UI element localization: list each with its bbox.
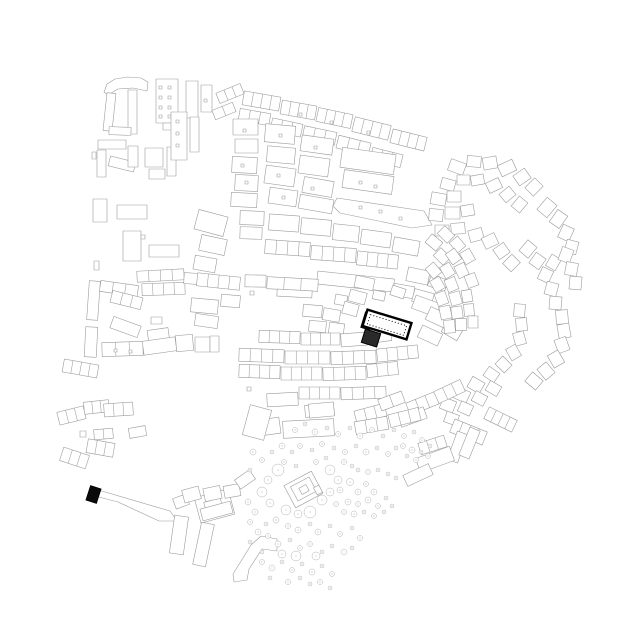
tree-symbol — [248, 468, 252, 472]
building-outline — [221, 294, 241, 308]
building-outline — [471, 391, 488, 407]
tree-symbol — [260, 560, 265, 565]
building-outline — [451, 306, 464, 319]
tree-symbol — [402, 434, 407, 439]
building-outline — [92, 152, 96, 159]
tree-symbol — [330, 544, 334, 548]
tree-symbol — [366, 470, 371, 475]
site-plan-map — [0, 0, 640, 640]
tree-symbol — [294, 464, 298, 468]
tree-symbol — [372, 514, 377, 519]
building-outline — [186, 81, 198, 118]
tree-symbol — [280, 560, 284, 564]
terraced-row — [366, 361, 398, 377]
courtyard-square — [359, 181, 362, 184]
tree-symbol — [308, 582, 312, 586]
tree-symbol — [412, 430, 416, 434]
building-outline — [231, 192, 258, 207]
building-outline — [481, 233, 499, 250]
tree-symbol — [350, 546, 354, 550]
building-outline — [98, 140, 126, 149]
building-outline — [149, 169, 165, 179]
building-outline — [210, 336, 219, 352]
building-outline — [457, 401, 473, 416]
building-outline — [470, 174, 485, 186]
tree-symbol — [325, 426, 329, 430]
tree-symbol — [386, 472, 390, 476]
courtyard-square — [114, 349, 117, 352]
courtyard-square — [279, 134, 282, 137]
building-outline — [233, 536, 277, 582]
building-outline — [95, 489, 177, 521]
tree-symbol — [290, 568, 295, 573]
tree-symbol — [405, 454, 409, 458]
building-outline — [513, 331, 527, 346]
building-outline — [194, 209, 228, 236]
courtyard-square — [141, 235, 145, 239]
courtyard-square — [159, 96, 162, 99]
tree-symbol — [394, 446, 398, 450]
courtyard-square — [314, 146, 317, 149]
tree-symbol — [358, 536, 363, 541]
courtyard-square — [299, 113, 302, 116]
building-outline — [429, 208, 444, 221]
building-outline — [342, 301, 360, 316]
tree-symbol — [355, 489, 361, 495]
tree-symbol — [337, 487, 343, 493]
terraced-row — [104, 402, 134, 417]
building-outline — [308, 402, 334, 418]
tree-symbol — [381, 434, 385, 438]
terraced-row — [352, 117, 392, 141]
tree-symbol — [426, 454, 431, 459]
courtyard-square — [241, 164, 244, 167]
courtyard-square — [159, 106, 162, 109]
building-outline — [194, 313, 218, 328]
building-outline — [451, 222, 466, 234]
terraced-row — [285, 351, 330, 364]
building-outline — [277, 289, 312, 298]
tree-symbol — [293, 428, 298, 433]
tree-symbol — [266, 534, 271, 539]
building-outline — [303, 304, 323, 318]
building-outline — [497, 159, 517, 177]
courtyard-square — [367, 131, 370, 134]
building-outline — [449, 291, 463, 306]
building-outline — [151, 317, 162, 324]
building-outline — [482, 156, 498, 170]
tree-symbol — [317, 495, 327, 505]
tree-symbol — [376, 468, 380, 472]
courtyard-square — [243, 129, 246, 132]
tree-symbol — [384, 496, 388, 500]
building-outline — [235, 139, 258, 153]
terraced-row — [299, 387, 340, 399]
tree-symbol — [294, 510, 302, 518]
terraced-row — [216, 84, 244, 104]
courtyard-square — [176, 120, 179, 123]
building-outline — [525, 372, 543, 390]
tree-symbol — [342, 460, 347, 465]
building-outline — [240, 227, 262, 240]
tree-symbol — [260, 550, 264, 554]
building-outline — [175, 334, 193, 351]
building-outline — [443, 320, 455, 334]
tree-symbol — [365, 497, 371, 503]
tree-symbol — [328, 524, 332, 528]
building-outline — [495, 356, 512, 373]
building-outline — [298, 155, 330, 177]
terraced-row — [196, 273, 240, 290]
tree-symbol — [428, 444, 432, 448]
courtyard-square — [176, 144, 179, 147]
building-outline — [332, 224, 360, 243]
tree-symbol — [304, 506, 316, 518]
building-outline — [267, 392, 299, 407]
terraced-row — [212, 102, 236, 120]
tree-symbol — [330, 572, 335, 577]
courtyard-square — [80, 431, 86, 437]
tree-symbol — [245, 499, 251, 505]
tree-symbol — [350, 526, 354, 530]
tree-symbol — [420, 438, 425, 443]
tree-symbol — [282, 460, 287, 465]
terraced-row — [323, 366, 366, 380]
tree-symbol — [382, 510, 386, 514]
tree-symbol — [312, 552, 320, 560]
building-outline — [240, 211, 264, 226]
building-outline — [417, 325, 442, 346]
tree-symbol — [286, 580, 291, 585]
tree-symbol — [414, 458, 419, 463]
tree-symbol — [303, 422, 307, 426]
building-outline — [103, 93, 116, 132]
small-black-building — [86, 486, 101, 504]
building-outline — [544, 281, 559, 297]
tree-symbol — [320, 564, 324, 568]
courtyard-square — [250, 291, 254, 295]
building-outline — [190, 117, 199, 152]
tree-symbol — [325, 465, 335, 475]
tree-symbol — [308, 522, 312, 526]
terraced-row — [94, 428, 114, 440]
building-outline — [537, 267, 553, 284]
tree-symbol — [342, 510, 347, 515]
building-outline — [93, 199, 107, 222]
courtyard-square — [168, 86, 171, 89]
tree-symbol — [290, 450, 294, 454]
courtyard-square — [204, 99, 207, 102]
courtyard-square — [277, 174, 280, 177]
tree-symbol — [362, 510, 366, 514]
terraced-row — [311, 245, 357, 262]
tree-symbol — [252, 509, 258, 515]
terraced-row — [62, 359, 99, 378]
page: { "page": {"background": "#ffffff"}, "co… — [0, 0, 640, 640]
building-outline — [245, 275, 266, 287]
tree-symbol — [286, 524, 291, 529]
courtyard-square — [129, 350, 132, 353]
courtyard-square — [176, 132, 179, 135]
terraced-row — [281, 367, 322, 380]
tree-symbol — [334, 476, 342, 484]
tree-symbol — [348, 426, 352, 430]
tree-symbol — [298, 444, 303, 449]
tree-symbol — [320, 442, 325, 447]
terraced-row — [316, 108, 353, 129]
tree-symbol — [356, 502, 361, 507]
tree-symbol — [268, 576, 272, 580]
terraced-row — [239, 364, 280, 378]
terraced-row — [280, 100, 317, 120]
building-outline — [128, 146, 138, 167]
courtyard-square — [359, 206, 362, 209]
building-outline — [360, 229, 392, 248]
terraced-row — [242, 91, 281, 111]
tree-symbol — [278, 550, 286, 558]
building-outline — [142, 337, 177, 355]
terraced-row — [57, 406, 86, 425]
tree-symbol — [419, 450, 423, 454]
building-outline — [457, 175, 470, 185]
terraced-row — [356, 251, 398, 269]
tree-symbol — [266, 499, 274, 507]
courtyard-square — [311, 187, 314, 190]
courtyard-square — [168, 96, 171, 99]
building-outline — [440, 177, 456, 191]
building-outline — [445, 207, 460, 219]
tree-symbol — [347, 479, 354, 486]
tree-symbol — [376, 504, 381, 509]
building-outline — [128, 426, 146, 439]
tree-symbol — [341, 549, 347, 555]
trees-layer — [245, 422, 432, 590]
terraced-row — [331, 350, 376, 365]
tree-symbol — [345, 499, 351, 505]
building-outline — [117, 205, 147, 219]
building-outline — [515, 318, 527, 332]
tree-symbol — [386, 452, 391, 457]
tree-symbol — [357, 433, 363, 439]
building-outline — [461, 289, 473, 303]
tree-symbol — [315, 529, 321, 535]
tree-symbol — [356, 468, 360, 472]
tree-symbol — [309, 569, 315, 575]
building-outline — [193, 255, 217, 273]
building-outline — [94, 261, 99, 270]
building-outline — [201, 85, 212, 112]
tree-symbol — [394, 476, 398, 480]
tree-symbol — [326, 488, 334, 496]
courtyard-square — [159, 86, 162, 89]
building-outline — [84, 327, 98, 358]
courtyard-square — [379, 210, 382, 213]
tree-symbol — [250, 449, 256, 455]
building-outline — [485, 178, 502, 194]
terraced-row — [102, 341, 143, 356]
building-outline — [439, 305, 452, 320]
tree-symbol — [255, 529, 261, 535]
tree-symbol — [371, 489, 377, 495]
tree-symbol — [332, 446, 336, 450]
building-outline — [463, 304, 474, 317]
courtyard-square — [330, 121, 333, 124]
building-outline — [87, 281, 101, 321]
courtyard-square — [159, 115, 162, 118]
building-outline — [403, 464, 433, 487]
building-outline — [110, 316, 141, 337]
terraced-row — [341, 386, 386, 400]
courtyard-square — [247, 387, 251, 391]
tree-symbol — [279, 443, 285, 449]
tree-symbol — [320, 550, 324, 554]
building-outline — [190, 298, 218, 314]
courtyard-square — [282, 196, 285, 199]
tree-symbol — [308, 542, 313, 547]
building-outline — [333, 198, 432, 228]
building-outline — [555, 310, 568, 325]
building-outline — [430, 192, 447, 206]
tree-symbol — [300, 562, 304, 566]
building-outline — [511, 196, 528, 213]
building-outline — [499, 186, 516, 203]
tree-symbol — [248, 540, 252, 544]
tree-symbol — [334, 502, 339, 507]
tree-symbol — [354, 444, 358, 448]
tree-symbol — [273, 517, 279, 523]
courtyard-square — [168, 115, 171, 118]
building-outline — [232, 156, 258, 173]
building-outline — [145, 148, 163, 167]
building-outline — [455, 318, 466, 330]
terraced-row — [259, 330, 300, 343]
building-outline — [392, 237, 420, 256]
tree-symbol — [343, 450, 348, 455]
tree-symbol — [392, 428, 396, 432]
tree-symbol — [328, 586, 332, 590]
terraced-row — [59, 447, 89, 469]
terraced-row — [265, 239, 311, 256]
terraced-row — [267, 277, 319, 292]
tree-symbol — [314, 460, 319, 465]
tree-symbol — [390, 504, 394, 508]
tree-symbol — [364, 482, 369, 487]
tree-symbol — [275, 541, 281, 547]
building-outline — [300, 218, 331, 237]
building-outline — [163, 123, 172, 130]
building-outline — [233, 119, 258, 135]
tree-symbol — [291, 551, 301, 561]
tree-symbol — [260, 458, 265, 463]
building-outline — [513, 304, 525, 318]
tree-symbol — [269, 565, 275, 571]
building-outline — [184, 273, 199, 285]
building-outline — [468, 316, 478, 328]
building-outline — [460, 204, 475, 217]
terraced-row — [301, 333, 340, 345]
terraced-row — [376, 345, 418, 362]
tree-symbol — [375, 446, 379, 450]
courtyard-square — [245, 181, 248, 184]
tree-symbol — [324, 456, 328, 460]
tree-symbol — [370, 428, 375, 433]
building-outline — [503, 254, 521, 272]
building-outline — [171, 112, 187, 160]
building-outline — [467, 155, 482, 167]
tree-symbol — [272, 464, 284, 476]
building-outline — [564, 262, 578, 277]
building-outline — [372, 290, 386, 301]
terraced-row — [137, 269, 185, 282]
terraced-row — [86, 439, 115, 457]
tree-symbol — [310, 448, 314, 452]
tree-symbol — [288, 538, 292, 542]
terraced-row — [239, 348, 284, 363]
tree-symbol — [257, 487, 267, 497]
building-outline — [195, 337, 210, 352]
courtyard-square — [374, 185, 377, 188]
tree-symbol — [264, 476, 272, 484]
tree-symbol — [312, 429, 318, 435]
context-buildings-layer — [57, 77, 582, 582]
building-outline — [322, 308, 341, 323]
building-outline — [309, 320, 327, 332]
tree-symbol — [248, 520, 253, 525]
tree-symbol — [350, 464, 354, 468]
tree-symbol — [338, 532, 343, 537]
building-outline — [447, 159, 466, 176]
tree-symbol — [363, 449, 369, 455]
building-outline — [569, 276, 582, 290]
building-outline — [266, 146, 295, 164]
terraced-row — [142, 282, 185, 295]
tree-symbol — [318, 580, 323, 585]
tree-symbol — [281, 505, 291, 515]
tree-symbol — [401, 444, 406, 449]
building-outline — [505, 344, 521, 361]
site-plan — [0, 0, 640, 640]
building-outline — [104, 77, 148, 95]
terraced-row — [484, 407, 518, 432]
building-outline — [123, 231, 141, 261]
building-outline — [302, 177, 334, 198]
building-outline — [459, 248, 475, 265]
building-outline — [193, 522, 215, 567]
building-outline — [149, 245, 179, 257]
building-outline — [549, 296, 562, 310]
tree-symbol — [264, 522, 268, 526]
building-outline — [109, 127, 131, 136]
building-outline — [199, 234, 228, 255]
building-outline — [485, 380, 502, 396]
courtyard-square — [399, 217, 402, 220]
building-outline — [268, 214, 299, 232]
building-outline — [483, 366, 500, 382]
tree-symbol — [295, 527, 301, 533]
tree-symbol — [336, 432, 341, 437]
tree-symbol — [298, 546, 303, 551]
tree-symbol — [409, 447, 415, 453]
building-outline — [97, 150, 106, 177]
tree-symbol — [270, 450, 274, 454]
building-outline — [447, 191, 461, 202]
tree-symbol — [298, 576, 302, 580]
tree-symbol — [351, 511, 357, 517]
terraced-row — [390, 129, 427, 151]
courtyard-square — [168, 106, 171, 109]
